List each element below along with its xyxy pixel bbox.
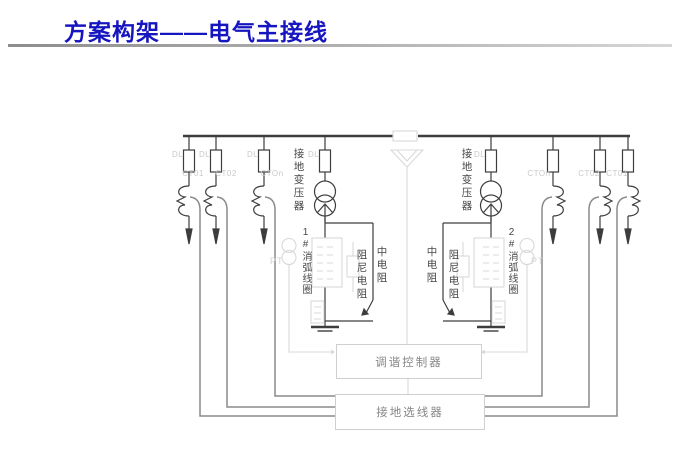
open-delta-icon xyxy=(391,150,423,167)
ct-label: CT02 xyxy=(215,169,237,178)
ground-left xyxy=(311,287,339,331)
arc-coil-right-label: 2#消弧线圈 xyxy=(506,227,516,295)
ct-symbol-icon xyxy=(628,186,640,216)
damping-resistor-right-label: 阻尼电阻 xyxy=(448,249,459,301)
breaker-label: DL xyxy=(474,150,485,159)
medium-resistor-right-label: 中电阻 xyxy=(426,246,437,285)
ct-label: CT01 xyxy=(606,169,628,178)
zigzag-winding-icon xyxy=(317,204,333,222)
feeder-right-3 xyxy=(623,136,641,244)
ct-symbol-icon xyxy=(177,186,189,216)
ct-symbol-icon xyxy=(204,186,216,216)
bus-pt-box xyxy=(393,131,417,141)
breaker-label: DL xyxy=(308,150,319,159)
breaker-label: DL xyxy=(172,150,183,159)
arc-coil-right-icon xyxy=(474,238,504,287)
switch-icon xyxy=(366,300,373,313)
ct-symbol-icon xyxy=(252,186,264,216)
pt-label: PT xyxy=(270,256,284,266)
slide: 方案构架——电气主接线 xyxy=(0,0,680,474)
tuning-controller-label: 调谐控制器 xyxy=(375,354,443,370)
tuning-controller-box: 调谐控制器 xyxy=(336,344,482,379)
ground-line-selector-label: 接地选线器 xyxy=(376,404,444,420)
ct-label: CT02 xyxy=(578,169,600,178)
arrow-icon xyxy=(261,229,267,244)
grounding-transformer-right-label: 接地变压器 xyxy=(461,148,472,213)
arrow-icon xyxy=(213,229,219,244)
grounding-transformer-left-label: 接地变压器 xyxy=(293,148,304,213)
feeder-right-1 xyxy=(548,136,566,244)
signal-line xyxy=(483,197,552,396)
arc-coil-left-icon xyxy=(312,238,342,287)
breaker-label: DL xyxy=(247,150,258,159)
ct-label: CTOn xyxy=(260,169,283,178)
arrow-icon xyxy=(597,229,603,244)
ct-symbol-icon xyxy=(553,186,565,216)
arrow-icon xyxy=(625,229,631,244)
tap-box-left-icon xyxy=(311,301,324,323)
damping-resistor-left-label: 阻尼电阻 xyxy=(356,249,367,301)
breaker-label: DL xyxy=(199,150,210,159)
arrow-icon xyxy=(550,229,556,244)
ct-label: CTOn xyxy=(527,169,550,178)
ct-symbol-icon xyxy=(600,186,612,216)
breaker-icon xyxy=(486,150,497,172)
tap-box-right-icon xyxy=(492,301,505,323)
signal-line xyxy=(483,197,599,407)
feeder-right-2 xyxy=(595,136,613,244)
ct-label: CT01 xyxy=(182,169,204,178)
ground-line-selector-box: 接地选线器 xyxy=(335,394,485,430)
signal-line xyxy=(217,197,335,407)
medium-resistor-left-label: 中电阻 xyxy=(376,246,387,285)
zigzag-winding-icon xyxy=(483,204,499,222)
switch-icon xyxy=(443,300,450,313)
breaker-icon xyxy=(320,150,331,172)
ground-right xyxy=(477,287,505,331)
pt-label: PT xyxy=(531,256,545,266)
arc-coil-left-label: 1#消弧线圈 xyxy=(300,227,310,295)
arrow-icon xyxy=(186,229,192,244)
